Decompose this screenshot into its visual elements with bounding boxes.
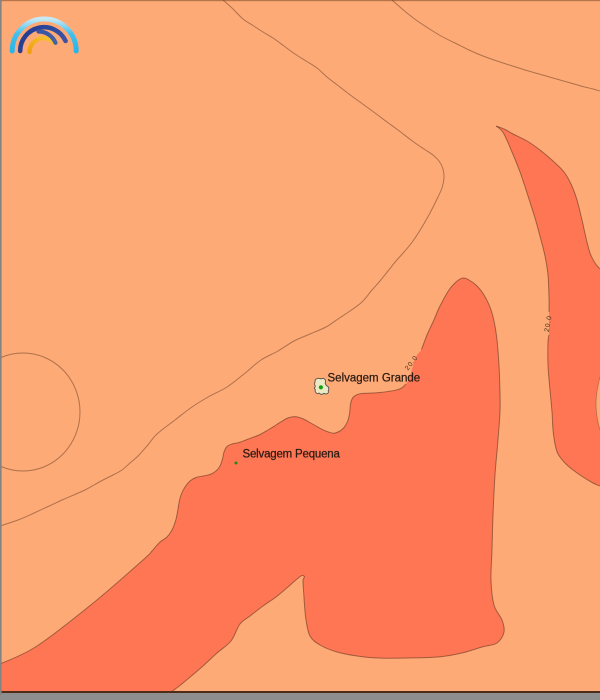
svg-text:Selvagem Pequena: Selvagem Pequena [243, 448, 341, 460]
svg-text:Selvagem Grande: Selvagem Grande [328, 372, 421, 384]
